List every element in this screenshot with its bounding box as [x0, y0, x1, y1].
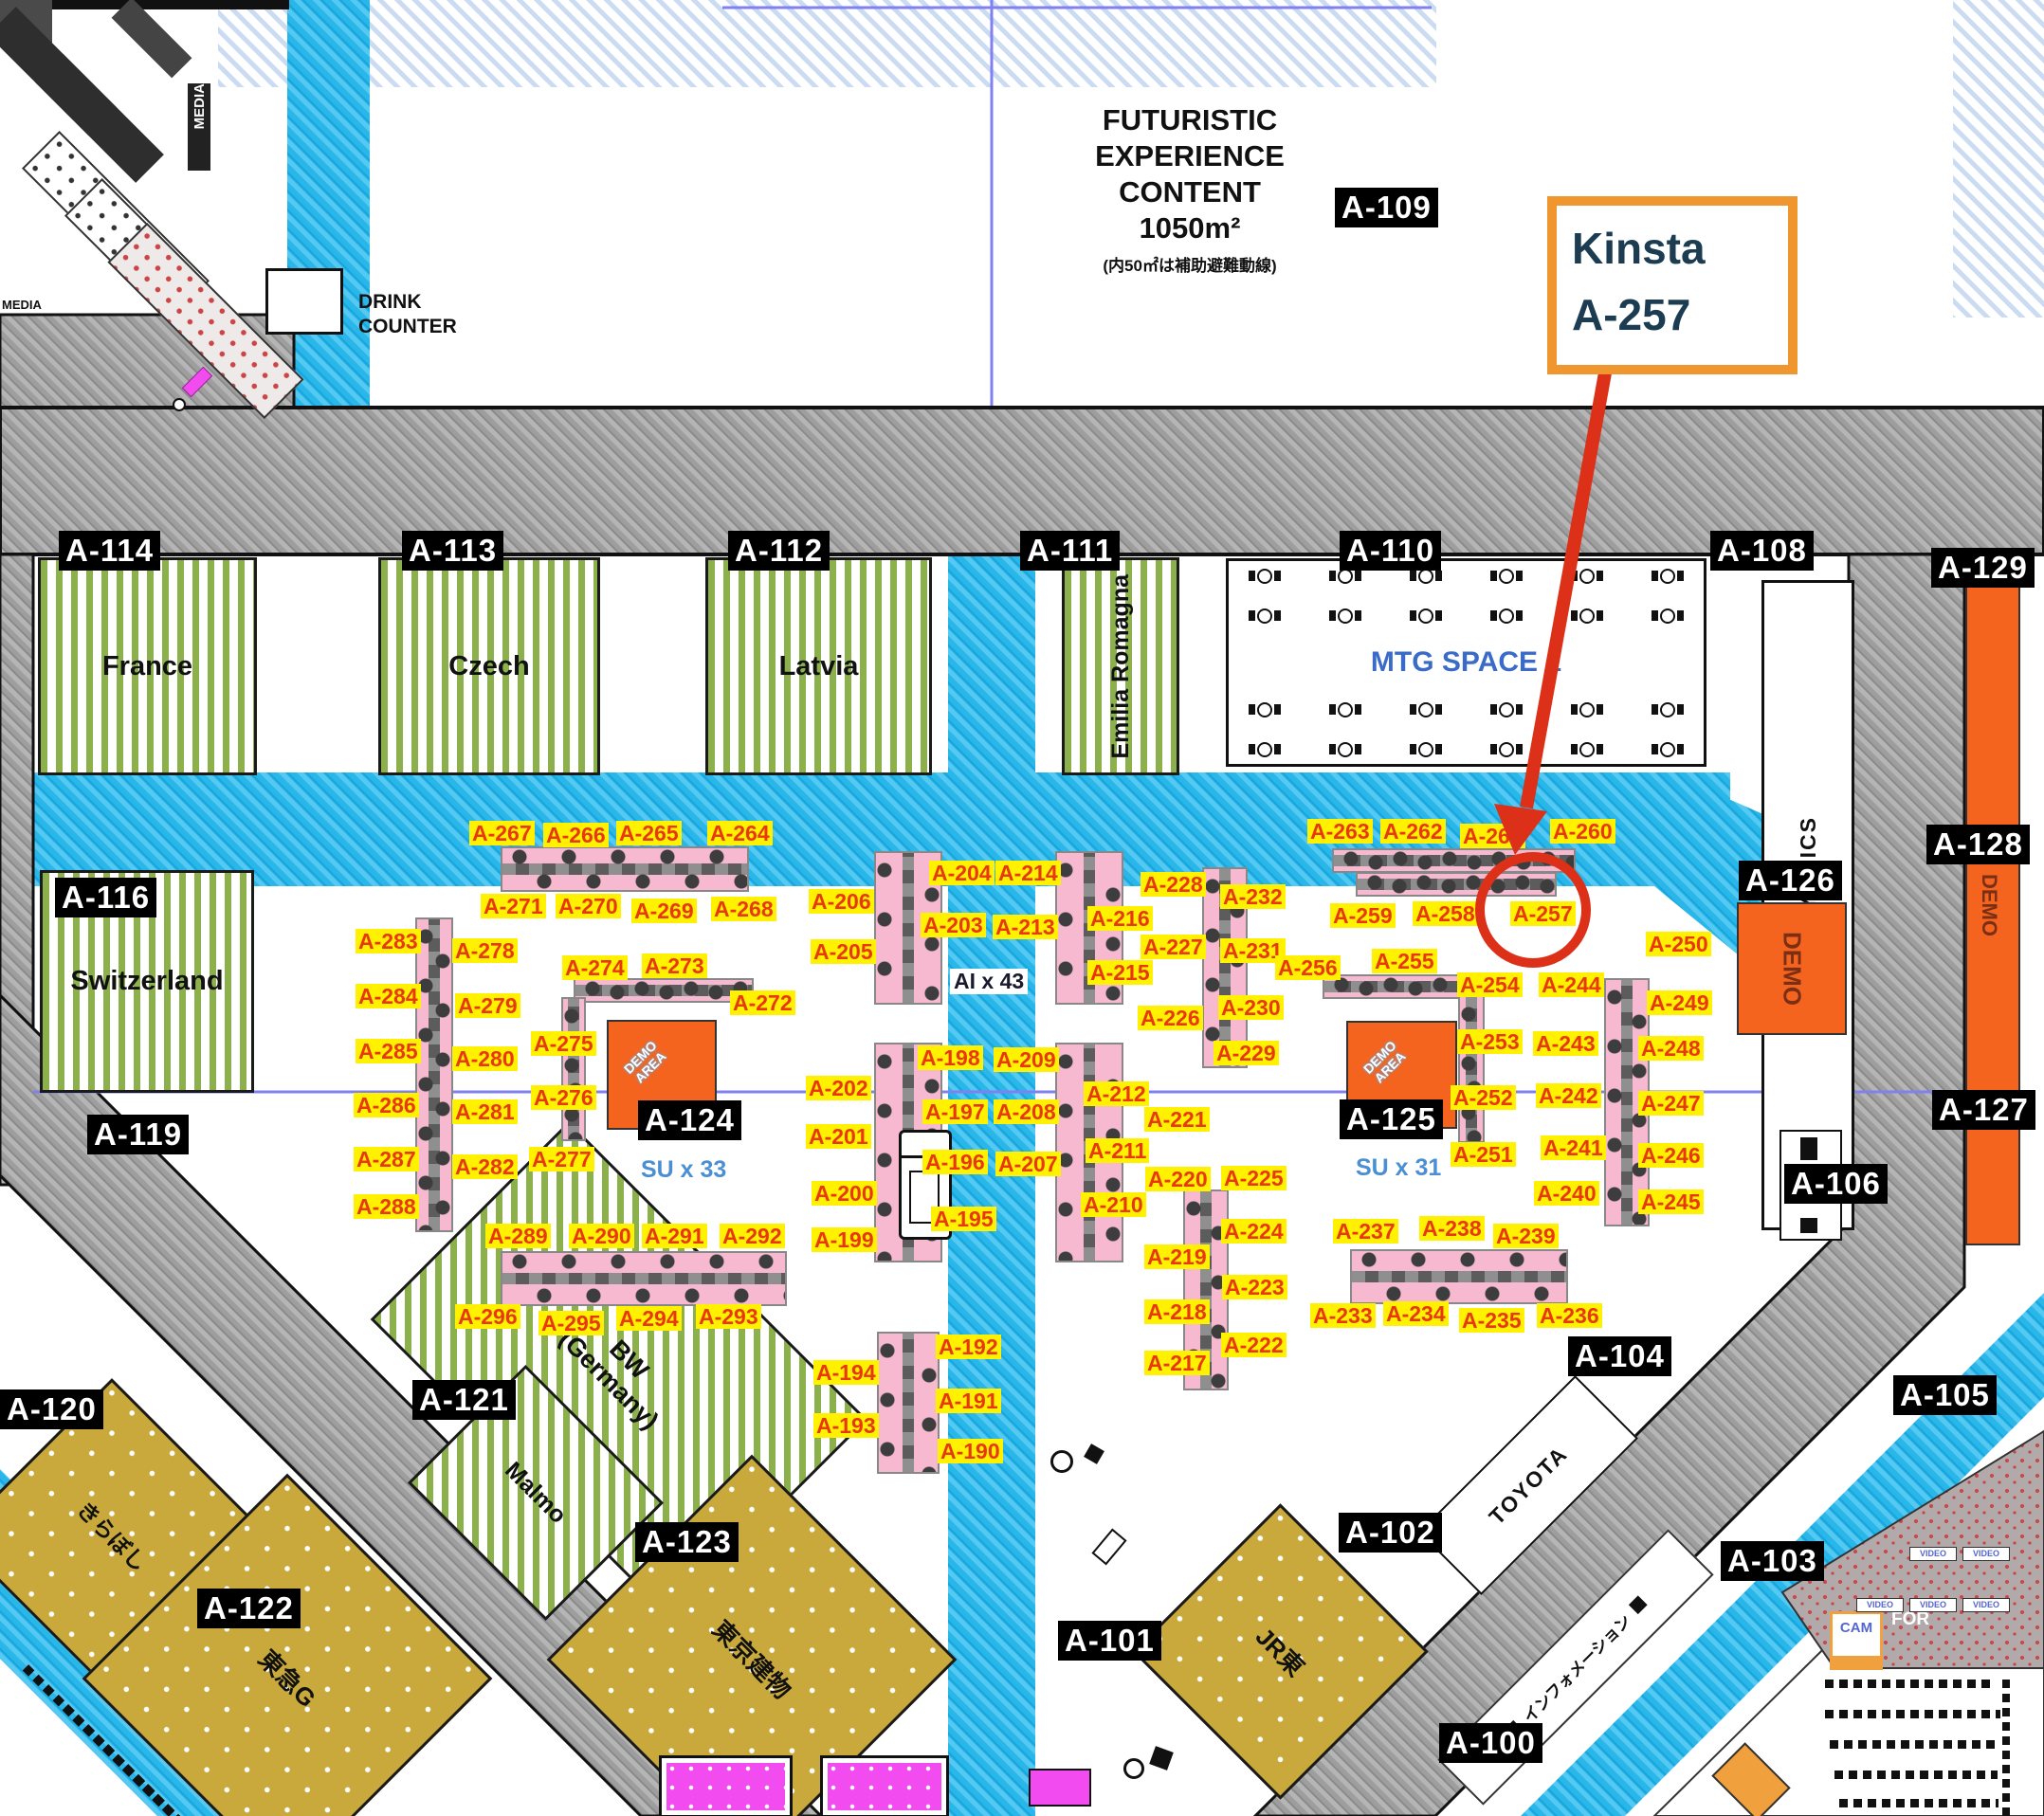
area-label-a-128: A-128 [1926, 825, 2030, 864]
cam-label: CAM [1833, 1620, 1880, 1636]
meeting-table-icon [1405, 608, 1447, 623]
demo-box-label: DEMO [1778, 932, 1807, 1006]
meeting-table-icon [1324, 742, 1366, 756]
mini-booth-strip [1356, 872, 1557, 897]
top-right-hatch-band [1953, 0, 2044, 318]
mini-booth-label-a-224: A-224 [1221, 1219, 1287, 1244]
mini-booth-label-a-261: A-261 [1460, 824, 1525, 848]
mini-booth-label-a-248: A-248 [1638, 1036, 1704, 1061]
media-label-vertical: MEDIA [188, 83, 210, 171]
mini-booth-label-a-222: A-222 [1221, 1333, 1287, 1357]
mini-booth-label-a-276: A-276 [531, 1085, 596, 1110]
mini-booth-label-a-271: A-271 [481, 894, 546, 918]
futuristic-note-jp: (内50㎡は補助避難動線) [1019, 252, 1360, 276]
top-wall-segment [52, 0, 289, 9]
mini-booth-label-a-232: A-232 [1220, 884, 1286, 909]
meeting-table-icon [1647, 608, 1688, 623]
mini-booth-label-a-234: A-234 [1383, 1301, 1449, 1326]
mini-booth-label-a-293: A-293 [696, 1304, 761, 1329]
demo-strip-label: DEMO [1977, 874, 2001, 936]
futuristic-area-label: FUTURISTIC EXPERIENCE CONTENT 1050m² (内5… [1019, 102, 1360, 276]
area-label-a-125: A-125 [1340, 1099, 1443, 1139]
mini-booth-strip [415, 917, 453, 1232]
meeting-table-icon [1324, 702, 1366, 717]
for-label: FOR [1891, 1609, 1929, 1630]
meeting-table-icon [1405, 569, 1447, 583]
mini-booth-label-a-228: A-228 [1141, 872, 1206, 897]
mini-booth-label-a-287: A-287 [354, 1147, 419, 1171]
area-label-a-106: A-106 [1784, 1164, 1888, 1204]
mini-booth-label-a-235: A-235 [1459, 1308, 1524, 1333]
area-label-a-103: A-103 [1721, 1541, 1824, 1581]
media-text: MEDIA [192, 83, 208, 129]
mini-booth-label-a-294: A-294 [616, 1306, 682, 1331]
mini-booth-label-a-251: A-251 [1451, 1142, 1516, 1167]
gate-structure [659, 1755, 793, 1816]
area-label-a-124: A-124 [638, 1100, 741, 1140]
meeting-table-icon [1566, 702, 1608, 717]
mini-booth-label-a-296: A-296 [455, 1304, 520, 1329]
area-label-a-114: A-114 [59, 531, 160, 571]
mini-booth-label-a-252: A-252 [1451, 1085, 1516, 1110]
mini-booth-label-a-249: A-249 [1647, 990, 1712, 1015]
booth-name-tokyu: 東急G [253, 1644, 321, 1713]
mini-booth-label-a-191: A-191 [936, 1389, 1001, 1413]
mini-booth-label-a-208: A-208 [994, 1099, 1059, 1124]
drink-counter-line1: DRINK [358, 290, 457, 315]
mini-booth-label-a-295: A-295 [538, 1311, 604, 1335]
mini-booth-label-a-214: A-214 [995, 861, 1061, 885]
mini-booth-strip [1458, 995, 1485, 1143]
mini-booth-label-a-219: A-219 [1144, 1244, 1210, 1269]
mini-booth-label-a-237: A-237 [1333, 1219, 1398, 1244]
mini-booth-strip [877, 1332, 940, 1474]
mtg-space-title: MTG SPACE 1 [1238, 648, 1694, 677]
mini-booth-label-a-194: A-194 [813, 1360, 879, 1385]
mini-booth-label-a-209: A-209 [994, 1047, 1059, 1072]
mini-booth-label-a-270: A-270 [556, 894, 621, 918]
booth-name-kiraboshi: きらぼし [71, 1496, 153, 1577]
su33-label: SU x 33 [641, 1156, 726, 1184]
meeting-table-icon [1486, 702, 1527, 717]
mini-booth-label-a-216: A-216 [1087, 906, 1153, 931]
mini-booth-label-a-245: A-245 [1638, 1189, 1704, 1214]
mtg-space-room: MTG SPACE 1 [1226, 558, 1706, 767]
mini-booth-label-a-244: A-244 [1539, 972, 1604, 997]
area-label-a-100: A-100 [1439, 1723, 1542, 1763]
mini-booth-strip [501, 1251, 787, 1306]
meeting-table-icon [1324, 608, 1366, 623]
seat-column [2002, 1676, 2010, 1816]
mini-booth-label-a-218: A-218 [1144, 1299, 1210, 1324]
area-label-a-109: A-109 [1335, 188, 1438, 227]
meeting-table-icon [1486, 742, 1527, 756]
mini-booth-label-a-206: A-206 [809, 889, 874, 914]
mini-booth-label-a-274: A-274 [562, 955, 628, 980]
meeting-table-icon [1405, 702, 1447, 717]
meeting-table-icon [1486, 569, 1527, 583]
mini-booth-label-a-290: A-290 [569, 1224, 634, 1248]
mini-booth-label-a-263: A-263 [1307, 819, 1373, 844]
aisle-center-vertical [948, 554, 1035, 1816]
mini-booth-label-a-273: A-273 [642, 953, 707, 978]
equipment-icon [1800, 1137, 1817, 1160]
seat-row [1839, 1799, 1998, 1807]
mini-booth-label-a-201: A-201 [806, 1124, 871, 1149]
mini-booth-label-a-285: A-285 [356, 1039, 421, 1063]
mini-booth-label-a-242: A-242 [1536, 1083, 1601, 1108]
mini-booth-label-a-215: A-215 [1087, 960, 1153, 985]
area-label-a-104: A-104 [1568, 1336, 1671, 1376]
mini-booth-label-a-213: A-213 [993, 915, 1058, 939]
mini-booth-label-a-279: A-279 [455, 993, 520, 1018]
mini-booth-label-a-207: A-207 [995, 1152, 1061, 1176]
meeting-table-icon [1486, 608, 1527, 623]
gate-magenta [666, 1763, 785, 1810]
meeting-table-icon [1647, 702, 1688, 717]
mini-booth-label-a-246: A-246 [1638, 1143, 1704, 1168]
mini-booth-label-a-205: A-205 [811, 939, 876, 964]
mini-booth-label-a-217: A-217 [1144, 1351, 1210, 1375]
mini-booth-label-a-262: A-262 [1380, 819, 1446, 844]
mtg-table-row [1238, 702, 1694, 717]
area-label-a-105: A-105 [1893, 1375, 1997, 1415]
mini-booth-label-a-286: A-286 [354, 1093, 419, 1117]
mini-booth-label-a-196: A-196 [922, 1150, 988, 1174]
floor-map: MEDIA MEDIA DRINK COUNTER FUTURISTIC EXP… [0, 0, 2044, 1816]
mini-booth-label-a-267: A-267 [469, 821, 535, 845]
mini-booth-label-a-264: A-264 [707, 821, 773, 845]
meeting-table-icon [1405, 742, 1447, 756]
futuristic-line2: EXPERIENCE [1019, 138, 1360, 174]
mtg-table-row [1238, 608, 1694, 623]
booth-name-france: France [102, 651, 192, 682]
area-label-a-102: A-102 [1339, 1513, 1442, 1553]
meeting-table-icon [1244, 742, 1286, 756]
media-label-small: MEDIA [2, 298, 42, 312]
su31-label: SU x 31 [1356, 1154, 1441, 1182]
mini-booth-label-a-272: A-272 [730, 990, 795, 1015]
mini-booth-label-a-289: A-289 [485, 1224, 551, 1248]
seat-row [1834, 1771, 1998, 1779]
area-label-a-126: A-126 [1739, 861, 1842, 900]
mini-booth-strip [1332, 848, 1576, 873]
mini-booth-label-a-223: A-223 [1222, 1275, 1287, 1299]
meeting-table-icon [1566, 608, 1608, 623]
callout-brand: Kinsta [1572, 215, 1788, 281]
mini-booth-label-a-238: A-238 [1419, 1216, 1485, 1241]
ai-count-chip: AI x 43 [950, 969, 1028, 994]
mini-booth-label-a-257: A-257 [1510, 901, 1576, 926]
mini-booth-label-a-239: A-239 [1493, 1224, 1559, 1248]
mini-booth-label-a-210: A-210 [1081, 1192, 1146, 1217]
meeting-table-icon [1244, 569, 1286, 583]
mini-booth-label-a-247: A-247 [1638, 1091, 1704, 1116]
booth-name-switzerland: Switzerland [70, 966, 223, 997]
mini-booth-label-a-258: A-258 [1413, 901, 1478, 926]
area-label-a-111: A-111 [1020, 531, 1120, 571]
gate-structure [820, 1755, 949, 1816]
mini-booth-label-a-233: A-233 [1310, 1303, 1376, 1328]
emilia-line: Emilia [1107, 689, 1134, 759]
mini-booth-label-a-269: A-269 [631, 899, 697, 923]
futuristic-line1: FUTURISTIC [1019, 102, 1360, 138]
romagna-line: Romagna [1107, 574, 1134, 682]
video-chip: VIDEO [1962, 1547, 2010, 1561]
mtg-table-row [1238, 569, 1694, 583]
mini-booth-label-a-256: A-256 [1275, 955, 1341, 980]
area-label-a-116: A-116 [55, 878, 156, 917]
mini-booth-label-a-202: A-202 [806, 1076, 871, 1100]
area-label-a-127: A-127 [1932, 1090, 2035, 1130]
video-chip: VIDEO [1962, 1598, 2010, 1612]
mini-booth-label-a-198: A-198 [918, 1045, 983, 1070]
floor-glyph-circle [1123, 1758, 1144, 1779]
booth-name-jr-east: JR東 [1250, 1622, 1310, 1681]
area-label-a-119: A-119 [87, 1115, 189, 1154]
mini-booth-label-a-284: A-284 [356, 984, 421, 1008]
booth-name-malmo: Malmo [499, 1456, 572, 1529]
mini-booth-label-a-266: A-266 [543, 823, 609, 847]
mini-booth-strip [1350, 1249, 1568, 1304]
area-label-a-112: A-112 [728, 531, 830, 571]
futuristic-line3: CONTENT [1019, 174, 1360, 210]
area-label-a-110: A-110 [1340, 531, 1441, 571]
mini-booth-label-a-212: A-212 [1084, 1081, 1149, 1106]
gate-post-circle [173, 398, 186, 411]
mini-booth-label-a-229: A-229 [1214, 1041, 1279, 1065]
mini-booth-label-a-260: A-260 [1550, 819, 1615, 844]
cam-base [1833, 1656, 1880, 1667]
mini-booth-label-a-253: A-253 [1457, 1029, 1523, 1054]
mini-booth-label-a-192: A-192 [936, 1335, 1001, 1359]
mini-booth-label-a-243: A-243 [1533, 1031, 1598, 1056]
booth-a112-latvia: Latvia [705, 557, 932, 775]
area-label-a-123: A-123 [635, 1522, 739, 1562]
booth-name-latvia: Latvia [779, 651, 859, 682]
mini-booth-label-a-226: A-226 [1138, 1006, 1203, 1030]
cam-booth: CAM [1830, 1611, 1883, 1670]
mini-booth-label-a-281: A-281 [452, 1099, 518, 1124]
area-label-a-120: A-120 [0, 1389, 103, 1429]
top-hatch-band [218, 0, 1436, 87]
booth-name-tokyo-tatemono: 東京建物 [707, 1615, 797, 1705]
info-icon [1629, 1595, 1648, 1614]
mini-booth-label-a-220: A-220 [1145, 1167, 1211, 1191]
demo-box-a126: DEMO [1737, 902, 1847, 1035]
meeting-table-icon [1647, 742, 1688, 756]
mini-booth-label-a-241: A-241 [1541, 1135, 1606, 1160]
meeting-table-icon [1244, 608, 1286, 623]
demo-strip-a128: DEMO [1965, 569, 2020, 1245]
meeting-table-icon [1324, 569, 1366, 583]
mini-booth-strip [574, 978, 754, 1003]
video-chip: VIDEO [1909, 1547, 1957, 1561]
booth-name-czech: Czech [448, 651, 529, 682]
mini-booth-label-a-203: A-203 [921, 913, 986, 937]
gate-magenta [828, 1763, 941, 1810]
video-chip: VIDEO [1909, 1598, 1957, 1612]
area-label-a-101: A-101 [1058, 1621, 1161, 1661]
drink-counter-label: DRINK COUNTER [358, 290, 457, 339]
area-label-a-122: A-122 [197, 1589, 301, 1628]
mini-booth-label-a-282: A-282 [452, 1154, 518, 1179]
mini-booth-label-a-211: A-211 [1086, 1138, 1149, 1163]
mini-booth-label-a-259: A-259 [1330, 903, 1396, 928]
booth-a114-france: France [38, 557, 257, 775]
mini-booth-label-a-254: A-254 [1457, 972, 1523, 997]
mini-booth-label-a-197: A-197 [922, 1099, 988, 1124]
drink-counter-stand [265, 268, 343, 335]
booth-a113-czech: Czech [378, 557, 600, 775]
mini-booth-label-a-204: A-204 [929, 861, 995, 885]
mini-booth-label-a-200: A-200 [812, 1181, 877, 1206]
mini-booth-label-a-280: A-280 [452, 1046, 518, 1071]
callout-booth: A-257 [1572, 281, 1788, 348]
mini-booth-label-a-255: A-255 [1372, 949, 1437, 973]
mini-booth-label-a-277: A-277 [529, 1147, 594, 1171]
mini-booth-strip [561, 997, 586, 1141]
area-label-a-108: A-108 [1710, 531, 1814, 571]
mini-booth-label-a-195: A-195 [931, 1207, 996, 1231]
seat-row [1825, 1680, 1996, 1688]
mini-booth-label-a-283: A-283 [356, 929, 421, 953]
mini-booth-label-a-268: A-268 [711, 897, 776, 921]
mini-booth-label-a-236: A-236 [1537, 1303, 1602, 1328]
mini-booth-label-a-225: A-225 [1221, 1166, 1287, 1190]
meeting-table-icon [1566, 569, 1608, 583]
gate-magenta-small [1029, 1769, 1091, 1807]
mini-booth-label-a-227: A-227 [1141, 935, 1206, 959]
mini-booth-label-a-199: A-199 [812, 1227, 877, 1252]
video-chip: VIDEO [1856, 1598, 1904, 1612]
mini-booth-label-a-278: A-278 [452, 938, 518, 963]
booth-name-toyota: TOYOTA [1484, 1441, 1573, 1530]
area-label-a-113: A-113 [402, 531, 503, 571]
mini-booth-label-a-292: A-292 [720, 1224, 785, 1248]
area-label-a-121: A-121 [412, 1380, 516, 1420]
meeting-table-icon [1647, 569, 1688, 583]
booth-a111-emilia-romagna: Emilia Romagna [1062, 557, 1179, 775]
meeting-table-icon [1244, 702, 1286, 717]
mini-booth-label-a-190: A-190 [938, 1439, 1003, 1463]
mini-booth-label-a-275: A-275 [531, 1031, 596, 1056]
equipment-icon [1800, 1218, 1817, 1233]
floor-glyph-circle [1050, 1450, 1073, 1473]
booth-name-emilia-romagna: Emilia Romagna [1107, 574, 1135, 759]
seat-row [1830, 1740, 1998, 1749]
mini-booth-label-a-230: A-230 [1218, 995, 1284, 1020]
mini-booth-strip [501, 846, 749, 892]
mini-booth-label-a-240: A-240 [1534, 1181, 1599, 1206]
kinsta-callout: Kinsta A-257 [1547, 196, 1798, 374]
meeting-table-icon [1566, 742, 1608, 756]
mini-booth-label-a-288: A-288 [354, 1194, 419, 1219]
aisle-top-vertical [287, 0, 370, 408]
area-label-a-129: A-129 [1931, 548, 2035, 588]
seat-row [1825, 1710, 2000, 1718]
mini-booth-label-a-265: A-265 [616, 821, 682, 845]
mini-booth-label-a-193: A-193 [813, 1413, 879, 1438]
mini-booth-label-a-221: A-221 [1144, 1107, 1210, 1132]
mtg-table-row [1238, 742, 1694, 756]
drink-counter-line2: COUNTER [358, 315, 457, 339]
mini-booth-label-a-250: A-250 [1646, 932, 1711, 956]
mini-booth-label-a-291: A-291 [642, 1224, 707, 1248]
futuristic-line4: 1050m² [1019, 210, 1360, 246]
